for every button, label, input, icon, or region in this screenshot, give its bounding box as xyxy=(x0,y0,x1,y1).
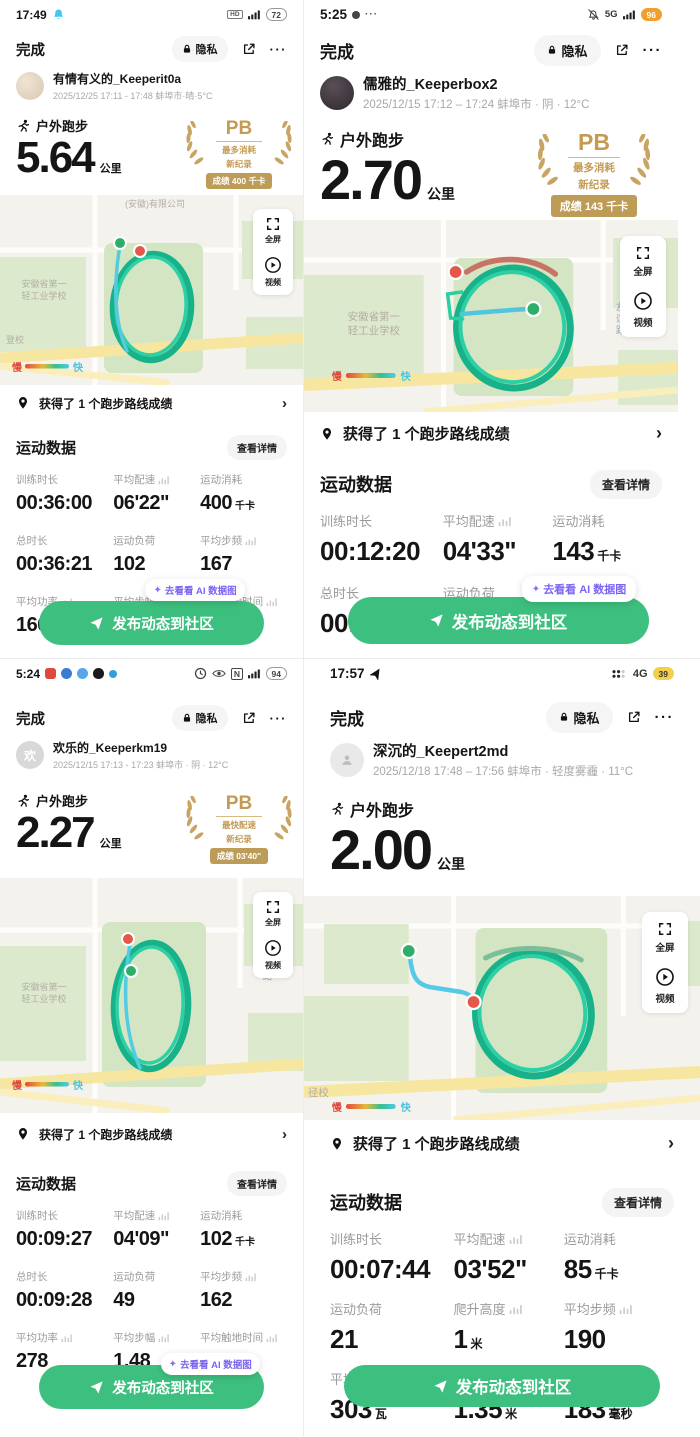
pace-legend-gradient xyxy=(346,1104,396,1109)
fullscreen-icon[interactable] xyxy=(266,900,280,914)
map-label-corner: 径校 xyxy=(308,1086,329,1099)
lock-icon xyxy=(182,713,192,723)
battery-indicator: 39 xyxy=(653,667,674,680)
data-title: 运动数据 xyxy=(330,1189,402,1215)
stat-cell: 总时长00:36:21 xyxy=(16,533,113,576)
share-icon xyxy=(242,711,256,725)
pb-badge: PB 最快配速 新纪录 成绩 03'40" xyxy=(185,793,293,864)
bell-icon xyxy=(52,8,65,21)
location-arrow-icon xyxy=(370,667,383,680)
user-row: 有情有义的_Keeperit0a 2025/12/25 17:11 - 17:4… xyxy=(0,70,303,102)
stat-cell: 平均配速04'09" xyxy=(113,1208,200,1251)
data-section-header: 运动数据 查看详情 xyxy=(304,1188,700,1217)
legend-slow: 慢 xyxy=(332,370,343,383)
svg-text:轻工业学校: 轻工业学校 xyxy=(348,324,401,337)
laurel-right-icon xyxy=(273,121,293,167)
stat-cell: 训练时长00:36:00 xyxy=(16,472,113,515)
mini-chart-icon xyxy=(509,1302,522,1315)
route-end-dot xyxy=(449,265,463,279)
fullscreen-label[interactable]: 全屏 xyxy=(633,264,652,278)
pb-score: 成绩 143 千卡 xyxy=(551,195,637,217)
legend-fast: 快 xyxy=(400,370,412,383)
map-label-school: 安徽省第一 xyxy=(348,310,401,323)
legend-fast: 快 xyxy=(400,1101,412,1114)
share-button[interactable] xyxy=(242,42,256,56)
share-button[interactable] xyxy=(615,43,629,57)
fullscreen-label[interactable]: 全屏 xyxy=(265,917,281,928)
app-icon-blue xyxy=(61,668,72,679)
clock-text: 5:24 xyxy=(16,667,40,681)
ai-chart-tooltip[interactable]: ✦去看看 AI 数据图 xyxy=(522,576,637,602)
stat-cell: 训练时长00:12:20 xyxy=(320,511,443,567)
pb-score: 成绩 03'40" xyxy=(210,848,268,864)
data-title: 运动数据 xyxy=(16,1173,76,1194)
bell-muted-icon xyxy=(587,8,600,21)
stat-cell: 训练时长00:09:27 xyxy=(16,1208,113,1251)
video-play-icon[interactable] xyxy=(633,291,653,311)
signal-icon xyxy=(623,8,636,21)
pb-badge: PB 最多消耗 新纪录 成绩 400 千卡 xyxy=(185,118,293,189)
legend-fast: 快 xyxy=(72,361,84,374)
stats-grid: 训练时长00:09:27 平均配速04'09" 运动消耗102千卡 总时长00:… xyxy=(0,1208,303,1373)
data-section-header: 运动数据 查看详情 xyxy=(0,1171,303,1196)
workout-screen-1: 17:49 HD 72 完成 隐私 ··· 有情有义的_Keeperit0a 2… xyxy=(0,0,303,658)
workout-meta: 2025/12/25 17:11 - 17:48 蚌埠市·晴·5°C xyxy=(53,89,213,102)
more-button[interactable]: ··· xyxy=(270,42,288,57)
route-map[interactable]: 安徽省第一 轻工业学校 友谊路 慢 快 全屏 视频 xyxy=(304,220,678,412)
workout-screen-2: 5:25 ··· 5G 96 完成 隐私 ··· 儒雅的_Keeperbox2 … xyxy=(303,0,700,658)
privacy-button[interactable]: 隐私 xyxy=(172,36,228,62)
avatar[interactable]: 欢 xyxy=(16,741,44,769)
laurel-left-icon xyxy=(185,121,205,167)
publish-button[interactable]: 发布动态到社区 xyxy=(348,597,649,644)
route-end-dot xyxy=(122,933,134,945)
stat-cell: 运动负荷21 xyxy=(330,1299,453,1355)
user-name: 有情有义的_Keeperit0a xyxy=(53,70,213,87)
activity-headline: 户外跑步 2.27公里 PB 最快配速 新纪录 成绩 03'40" xyxy=(0,791,303,856)
chevron-right-icon: › xyxy=(282,395,287,412)
sparkle-icon: ✦ xyxy=(169,1359,177,1370)
route-start-dot xyxy=(402,944,416,958)
laurel-left-icon xyxy=(536,134,560,188)
distance-value: 2.00公里 xyxy=(330,821,674,880)
publish-button[interactable]: 发布动态到社区 xyxy=(39,601,263,645)
share-icon xyxy=(627,710,641,724)
person-icon xyxy=(340,753,354,767)
distance-unit: 公里 xyxy=(437,856,465,872)
map-controls: 全屏 视频 xyxy=(620,236,666,337)
activity-headline: 户外跑步 2.70公里 PB 最多消耗 新纪录 成绩 143 千卡 xyxy=(304,127,678,210)
video-label[interactable]: 视频 xyxy=(655,991,674,1005)
video-label[interactable]: 视频 xyxy=(265,960,281,971)
title-bar: 完成 隐私 ··· xyxy=(0,705,303,731)
done-button[interactable]: 完成 xyxy=(330,705,364,730)
network-type: 4G xyxy=(633,668,648,680)
video-play-icon[interactable] xyxy=(264,256,282,274)
route-pin-icon xyxy=(330,1137,344,1151)
route-start-dot xyxy=(526,302,540,316)
title-bar: 完成 隐私 ··· xyxy=(304,36,678,64)
send-icon xyxy=(89,1380,104,1395)
video-play-icon[interactable] xyxy=(655,967,675,987)
fullscreen-label[interactable]: 全屏 xyxy=(655,940,674,954)
view-details-button[interactable]: 查看详情 xyxy=(590,470,662,499)
route-pin-icon xyxy=(320,427,334,441)
privacy-button[interactable]: 隐私 xyxy=(546,702,612,733)
app-icon-dot xyxy=(109,670,117,678)
runner-icon xyxy=(330,802,344,816)
signal-icon xyxy=(248,8,261,21)
stat-cell: 运动消耗85千卡 xyxy=(564,1229,674,1285)
app-icon-red xyxy=(45,668,56,679)
more-button[interactable]: ··· xyxy=(270,711,288,726)
status-bar: 17:49 HD 72 xyxy=(0,0,303,22)
user-name: 儒雅的_Keeperbox2 xyxy=(363,73,589,94)
avatar[interactable] xyxy=(16,72,44,100)
share-icon xyxy=(242,42,256,56)
map-label-company: (安徽)有限公司 xyxy=(125,198,185,209)
stat-cell: 平均步频162 xyxy=(200,1269,287,1312)
map-controls: 全屏 视频 xyxy=(253,892,293,978)
more-status-icon: ··· xyxy=(365,9,378,20)
route-end-dot xyxy=(134,245,146,257)
view-details-button[interactable]: 查看详情 xyxy=(602,1188,674,1217)
send-icon xyxy=(433,1379,448,1394)
mini-chart-icon xyxy=(61,1332,72,1343)
workout-screen-4: 17:57 4G 39 完成 隐私 ··· 深沉的_Keepert2md 202… xyxy=(303,658,700,1437)
sparkle-icon: ✦ xyxy=(153,585,161,596)
route-end-dot xyxy=(467,995,481,1009)
fullscreen-icon[interactable] xyxy=(658,922,672,936)
fullscreen-icon[interactable] xyxy=(266,217,280,231)
app-icon-lightblue xyxy=(77,668,88,679)
clock-text: 17:57 xyxy=(330,666,365,681)
mini-chart-icon xyxy=(509,1232,522,1245)
data-title: 运动数据 xyxy=(320,471,392,497)
mini-chart-icon xyxy=(619,1302,632,1315)
svg-text:轻工业学校: 轻工业学校 xyxy=(21,290,66,301)
done-button[interactable]: 完成 xyxy=(16,39,45,60)
more-button[interactable]: ··· xyxy=(655,709,675,726)
chevron-right-icon: › xyxy=(656,423,662,444)
share-icon xyxy=(615,43,629,57)
route-achievement-bar[interactable]: 获得了 1 个跑步路线成绩› xyxy=(304,412,678,456)
distance-unit: 公里 xyxy=(100,838,122,850)
privacy-button[interactable]: 隐私 xyxy=(172,705,228,731)
route-map[interactable]: 友谊路 径校 慢 快 全屏 视频 xyxy=(304,896,700,1120)
stat-cell: 运动消耗143千卡 xyxy=(552,511,662,567)
publish-button[interactable]: 发布动态到社区 xyxy=(344,1365,661,1407)
send-icon xyxy=(89,616,104,631)
chevron-right-icon: › xyxy=(282,1126,287,1143)
nfc-icon: N xyxy=(231,668,242,680)
video-play-icon[interactable] xyxy=(264,939,282,957)
route-start-dot xyxy=(125,965,137,977)
workout-meta: 2025/12/18 17:48 – 17:56 蚌埠市 · 轻度雾霾 · 11… xyxy=(373,763,633,779)
network-type: 5G xyxy=(605,9,618,20)
stat-cell: 平均配速04'33" xyxy=(443,511,553,567)
distance-unit: 公里 xyxy=(100,163,122,175)
video-label[interactable]: 视频 xyxy=(265,277,281,288)
more-button[interactable]: ··· xyxy=(643,42,663,59)
laurel-right-icon xyxy=(273,796,293,842)
mini-chart-icon xyxy=(158,474,169,485)
ai-chart-tooltip[interactable]: ✦去看看 AI 数据图 xyxy=(161,1353,260,1375)
laurel-right-icon xyxy=(628,134,652,188)
route-pin-icon xyxy=(16,1127,30,1141)
status-bar: 5:25 ··· 5G 96 xyxy=(304,0,678,22)
route-achievement-bar[interactable]: 获得了 1 个跑步路线成绩› xyxy=(304,1120,700,1168)
stat-cell: 平均配速06'22" xyxy=(113,472,200,515)
data-section-header: 运动数据 查看详情 xyxy=(0,435,303,460)
user-row: 欢 欢乐的_Keeperkm19 2025/12/15 17:13 - 17:2… xyxy=(0,739,303,771)
activity-headline: 户外跑步 2.00公里 xyxy=(304,797,700,880)
mini-chart-icon xyxy=(498,514,511,527)
route-map[interactable]: 安徽省第一 轻工业学校 友谊路 慢 快 全屏 视频 xyxy=(0,878,303,1113)
user-row: 深沉的_Keepert2md 2025/12/18 17:48 – 17:56 … xyxy=(304,740,700,779)
workout-meta: 2025/12/15 17:12 – 17:24 蚌埠市 · 阴 · 12°C xyxy=(363,96,589,112)
signal-dots-icon xyxy=(611,668,628,679)
clock-text: 17:49 xyxy=(16,8,47,22)
workout-screen-3: 5:24 N 94 完成 隐私 ··· 欢 xyxy=(0,658,303,1437)
status-bar: 17:57 4G 39 xyxy=(304,659,700,681)
stat-cell: 平均步频190 xyxy=(564,1299,674,1355)
mini-chart-icon xyxy=(158,1210,169,1221)
avatar[interactable] xyxy=(320,76,354,110)
avatar[interactable] xyxy=(330,743,364,777)
done-button[interactable]: 完成 xyxy=(320,38,354,63)
signal-icon xyxy=(248,667,261,680)
svg-text:轻工业学校: 轻工业学校 xyxy=(21,993,66,1004)
pb-badge: PB 最多消耗 新纪录 成绩 143 千卡 xyxy=(536,129,652,217)
legend-slow: 慢 xyxy=(12,361,23,374)
screenshot-collage: 17:49 HD 72 完成 隐私 ··· 有情有义的_Keeperit0a 2… xyxy=(0,0,700,1437)
runner-icon xyxy=(16,119,30,133)
fullscreen-label[interactable]: 全屏 xyxy=(265,234,281,245)
battery-indicator: 94 xyxy=(266,667,287,680)
route-map[interactable]: (安徽)有限公司 安徽省第一 轻工业学校 友谊路 登校 慢 快 全屏 视频 xyxy=(0,195,303,385)
stat-cell: 运动消耗400千卡 xyxy=(200,472,287,515)
map-label-school: 安徽省第一 xyxy=(21,981,66,992)
map-label-school: 安徽省第一 xyxy=(21,278,66,289)
eye-icon xyxy=(212,669,226,678)
route-achievement-bar[interactable]: 获得了 1 个跑步路线成绩› xyxy=(0,385,303,421)
sparkle-icon: ✦ xyxy=(532,584,540,595)
map-controls: 全屏 视频 xyxy=(642,912,688,1013)
runner-icon xyxy=(16,794,30,808)
user-row: 儒雅的_Keeperbox2 2025/12/15 17:12 – 17:24 … xyxy=(304,73,678,112)
legend-slow: 慢 xyxy=(12,1079,23,1092)
pace-legend-gradient xyxy=(25,1082,69,1087)
mini-chart-icon xyxy=(245,1271,256,1282)
share-button[interactable] xyxy=(242,711,256,725)
stat-cell: 总时长00:09:28 xyxy=(16,1269,113,1312)
pb-score: 成绩 400 千卡 xyxy=(206,173,273,189)
stat-cell: 平均步频167 xyxy=(200,533,287,576)
laurel-left-icon xyxy=(185,796,205,842)
done-button[interactable]: 完成 xyxy=(16,708,45,729)
stat-cell: 运动负荷49 xyxy=(113,1269,200,1312)
stat-cell: 平均配速03'52" xyxy=(453,1229,563,1285)
route-pin-icon xyxy=(16,396,30,410)
user-name: 深沉的_Keepert2md xyxy=(373,740,633,761)
send-icon xyxy=(429,613,444,628)
clock-text: 5:25 xyxy=(320,7,347,22)
notification-dot-icon xyxy=(352,11,360,19)
distance-unit: 公里 xyxy=(427,186,455,202)
lock-icon xyxy=(547,45,557,55)
map-label-corner: 登校 xyxy=(6,334,24,345)
stat-cell: 爬升高度1米 xyxy=(453,1299,563,1355)
status-bar: 5:24 N 94 xyxy=(0,659,303,681)
battery-indicator: 96 xyxy=(641,8,662,21)
stat-cell: 运动消耗102千卡 xyxy=(200,1208,287,1251)
title-bar: 完成 隐私 ··· xyxy=(304,703,700,731)
legend-fast: 快 xyxy=(72,1079,84,1092)
pace-legend-gradient xyxy=(25,364,69,369)
mini-chart-icon xyxy=(245,535,256,546)
lock-icon xyxy=(559,712,569,722)
title-bar: 完成 隐私 ··· xyxy=(0,36,303,62)
activity-headline: 户外跑步 5.64公里 PB 最多消耗 新纪录 成绩 400 千卡 xyxy=(0,116,303,181)
mini-chart-icon xyxy=(158,1332,169,1343)
runner-icon xyxy=(320,132,334,146)
share-button[interactable] xyxy=(627,710,641,724)
stat-cell: 运动负荷102 xyxy=(113,533,200,576)
qq-penguin-icon xyxy=(93,668,104,679)
hd-badge: HD xyxy=(227,10,242,19)
stat-cell: 训练时长00:07:44 xyxy=(330,1229,453,1285)
route-start-dot xyxy=(114,237,126,249)
mini-chart-icon xyxy=(266,596,277,607)
view-details-button[interactable]: 查看详情 xyxy=(227,435,287,460)
clock-status-icon xyxy=(194,667,207,680)
battery-indicator: 72 xyxy=(266,8,287,21)
data-title: 运动数据 xyxy=(16,437,76,458)
route-achievement-bar[interactable]: 获得了 1 个跑步路线成绩› xyxy=(0,1113,303,1155)
pace-legend-gradient xyxy=(346,373,396,378)
chevron-right-icon: › xyxy=(668,1133,674,1154)
workout-meta: 2025/12/15 17:13 - 17:23 蚌埠市 · 阴 · 12°C xyxy=(53,758,228,771)
map-controls: 全屏 视频 xyxy=(253,209,293,295)
video-label[interactable]: 视频 xyxy=(633,315,652,329)
lock-icon xyxy=(182,44,192,54)
privacy-button[interactable]: 隐私 xyxy=(534,35,600,66)
user-name: 欢乐的_Keeperkm19 xyxy=(53,739,228,756)
legend-slow: 慢 xyxy=(332,1101,343,1114)
fullscreen-icon[interactable] xyxy=(636,246,650,260)
data-section-header: 运动数据 查看详情 xyxy=(304,470,678,499)
mini-chart-icon xyxy=(266,1332,277,1343)
ai-chart-tooltip[interactable]: ✦去看看 AI 数据图 xyxy=(145,579,244,601)
view-details-button[interactable]: 查看详情 xyxy=(227,1171,287,1196)
